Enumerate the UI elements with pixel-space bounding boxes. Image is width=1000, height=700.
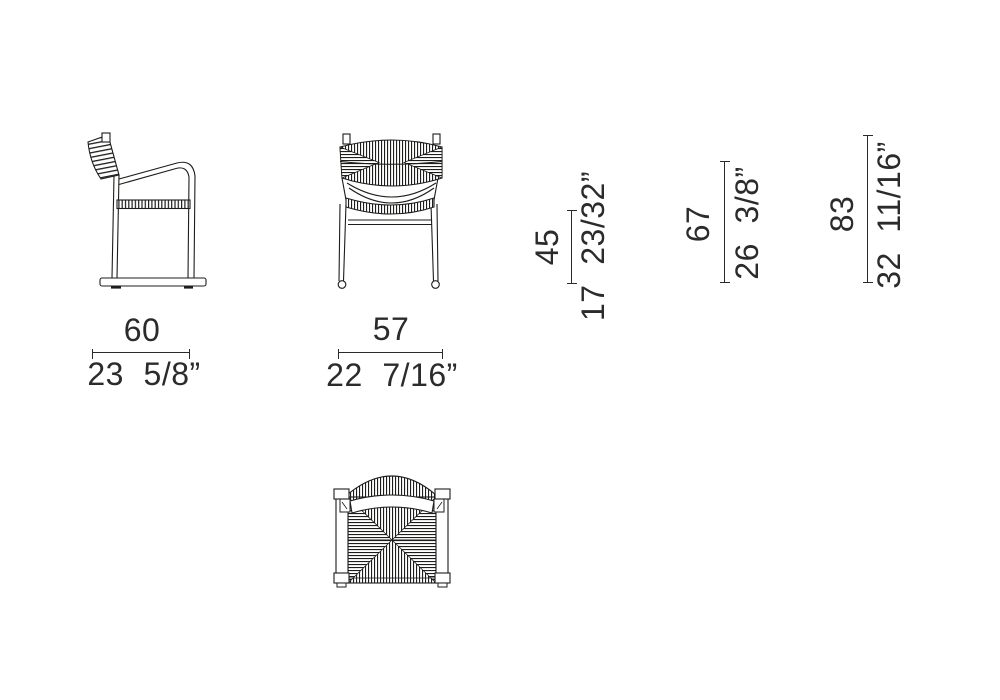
front-width-cm-label: 57 (373, 313, 410, 345)
front-width-inch-label: 22 7/16” (326, 359, 458, 391)
top-view-drawing (332, 462, 452, 590)
overall-height-inch-label: 32 11/16” (873, 141, 905, 289)
arm-height-dim-line (724, 161, 725, 283)
seat-height-dim-line (571, 210, 572, 284)
seat-height-inch-label: 17 23/32” (577, 171, 609, 321)
seat-height-cm-label: 45 (531, 229, 563, 266)
front-width-dim-line (338, 352, 443, 353)
side-width-inch-label: 23 5/8” (87, 358, 200, 390)
side-width-dim-line (92, 352, 190, 353)
dimension-diagram: 60 23 5/8” 57 22 7/16” 45 17 23/32” 67 2… (0, 0, 1000, 700)
side-width-cm-label: 60 (124, 314, 161, 346)
arm-height-cm-label: 67 (682, 206, 714, 243)
overall-height-dim-line (867, 135, 868, 283)
arm-height-inch-label: 26 3/8” (731, 166, 763, 279)
front-view-drawing (333, 124, 448, 294)
overall-height-cm-label: 83 (826, 196, 858, 233)
side-view-drawing (82, 118, 222, 290)
